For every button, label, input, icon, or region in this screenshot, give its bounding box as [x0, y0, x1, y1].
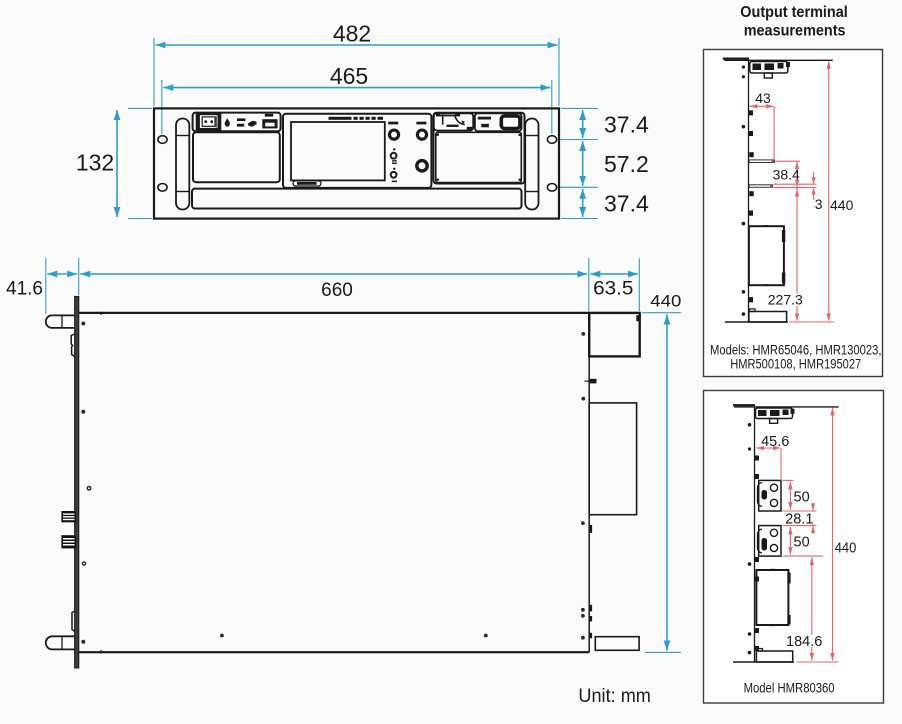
svg-text:Model HMR80360: Model HMR80360: [744, 680, 835, 696]
svg-text:Models: HMR65046, HMR130023,: Models: HMR65046, HMR130023,: [710, 343, 882, 358]
svg-text:Unit: mm: Unit: mm: [578, 686, 651, 707]
svg-text:57.2: 57.2: [604, 151, 649, 177]
svg-text:3: 3: [815, 196, 823, 212]
svg-text:440: 440: [830, 197, 854, 213]
svg-text:132: 132: [76, 150, 114, 176]
svg-text:Output terminal: Output terminal: [740, 4, 848, 21]
svg-text:45.6: 45.6: [761, 434, 789, 450]
svg-text:50: 50: [794, 535, 810, 551]
svg-text:440: 440: [835, 541, 857, 557]
svg-text:184.6: 184.6: [786, 634, 822, 650]
svg-text:440: 440: [650, 293, 681, 311]
svg-text:50: 50: [794, 489, 810, 505]
svg-text:28.1: 28.1: [785, 511, 813, 527]
svg-text:37.4: 37.4: [604, 191, 649, 217]
svg-text:41.6: 41.6: [6, 279, 43, 300]
svg-text:43: 43: [755, 90, 771, 106]
svg-text:482: 482: [333, 21, 371, 47]
svg-text:227.3: 227.3: [768, 292, 803, 308]
svg-text:465: 465: [330, 63, 368, 89]
svg-text:660: 660: [321, 280, 353, 301]
svg-text:63.5: 63.5: [593, 279, 633, 300]
svg-text:HMR500108, HMR195027: HMR500108, HMR195027: [730, 357, 861, 372]
svg-text:38.4: 38.4: [773, 167, 800, 183]
svg-text:measurements: measurements: [744, 22, 846, 39]
svg-text:37.4: 37.4: [604, 112, 649, 138]
